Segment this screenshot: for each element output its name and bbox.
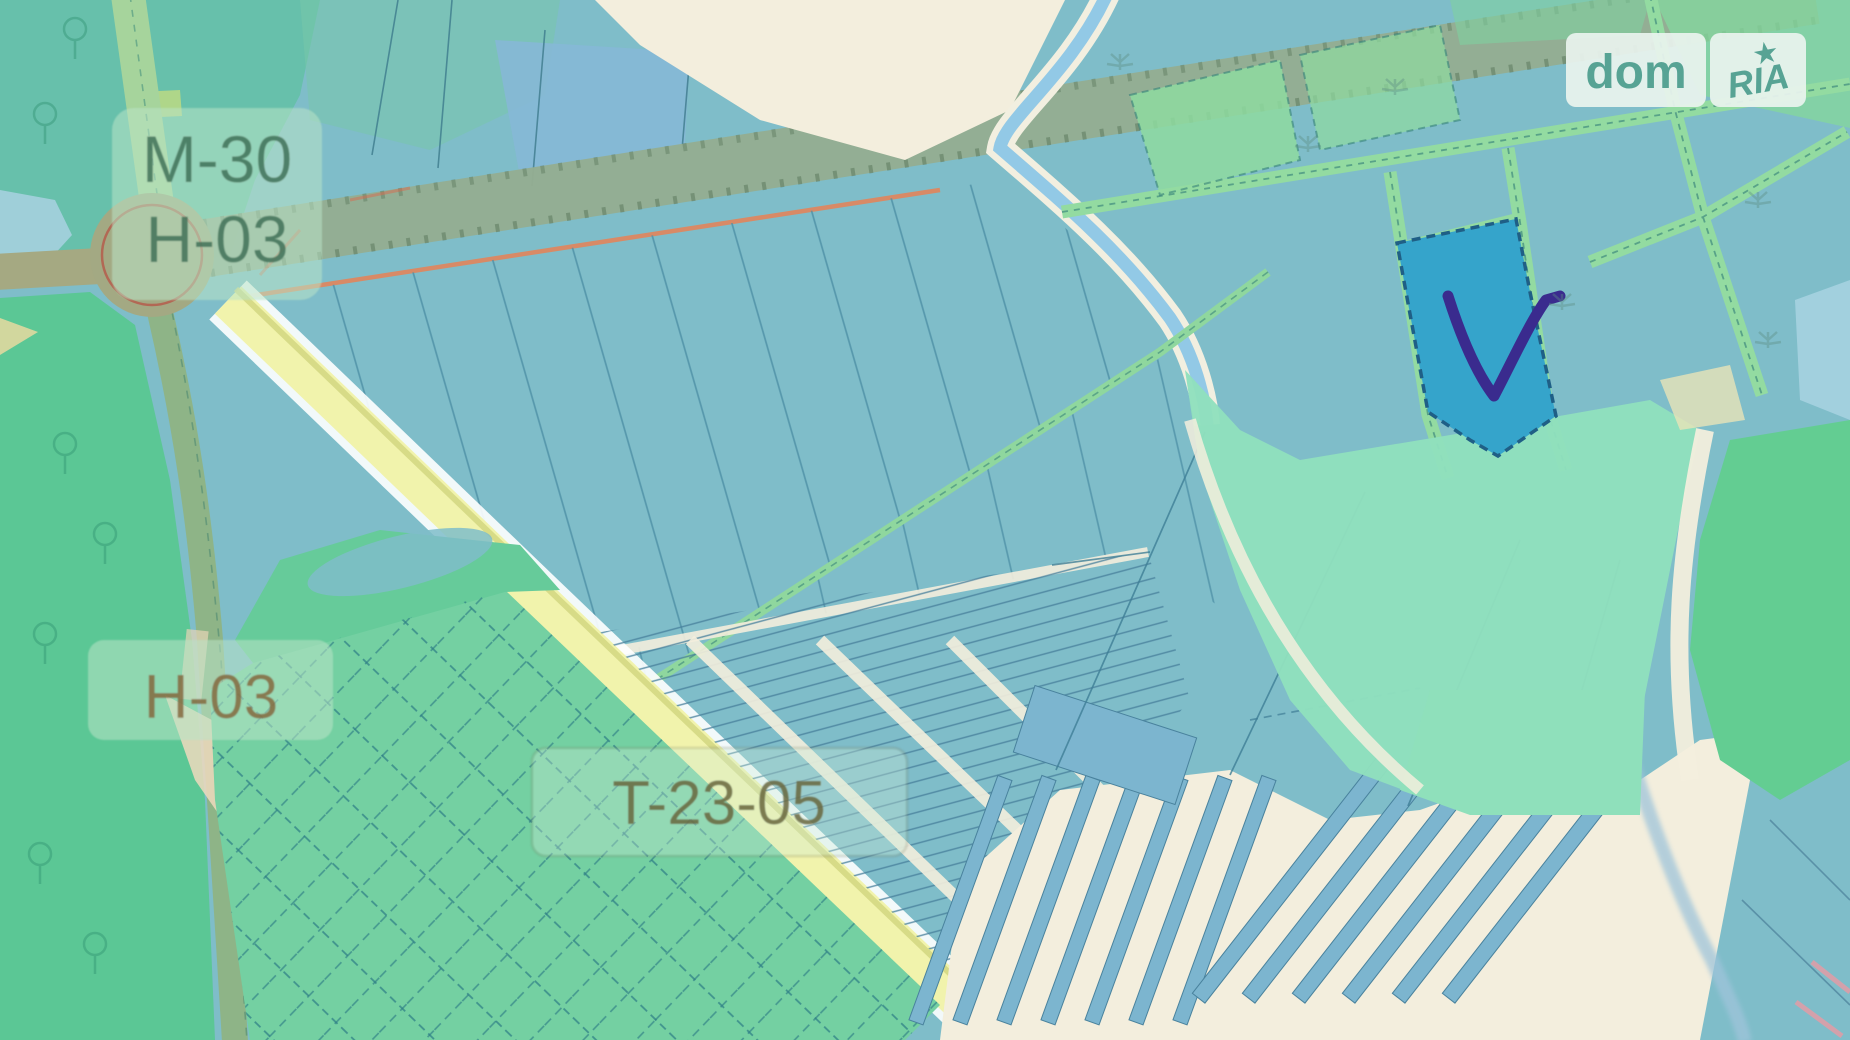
cadastral-map[interactable]: M-30 H-03 H-03 T-23-05 dom RIA ★ xyxy=(0,0,1850,1040)
highway-label-line2: H-03 xyxy=(145,202,288,276)
logo-dom-text: dom xyxy=(1585,46,1686,99)
t-road-label: T-23-05 xyxy=(612,769,826,838)
map-viewport[interactable]: M-30 H-03 H-03 T-23-05 dom RIA ★ xyxy=(0,0,1850,1040)
h-road-label: H-03 xyxy=(144,663,278,732)
dom-ria-watermark: dom RIA ★ xyxy=(1566,33,1806,107)
t-road-label-badge: T-23-05 xyxy=(532,748,907,856)
highway-label-badge: M-30 H-03 xyxy=(112,108,322,300)
highway-label-line1: M-30 xyxy=(142,122,292,196)
h-road-label-badge: H-03 xyxy=(88,640,333,740)
